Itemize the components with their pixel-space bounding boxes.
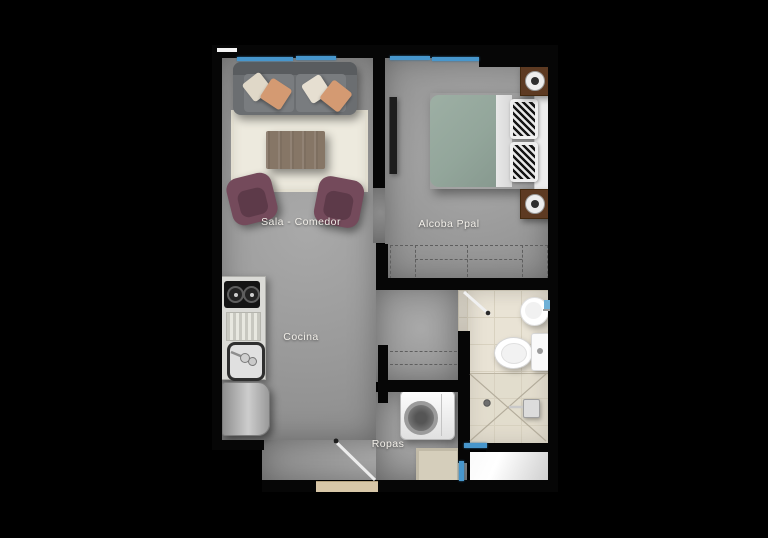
refrigerator [222, 382, 270, 436]
toilet [494, 337, 533, 369]
room-label-ropas: Ropas [372, 438, 405, 450]
window-bedroom-left [390, 56, 430, 60]
wall-top-right-thick [479, 45, 558, 67]
shower-fixture [523, 399, 540, 418]
coffee-table [266, 131, 325, 169]
ropas-closet-rod-line [390, 351, 457, 352]
window-bedroom-right [432, 57, 479, 61]
bedroom-closet-divider [522, 245, 523, 277]
washer-door [404, 401, 438, 435]
bedroom-closet-divider [467, 245, 468, 277]
nightstand-lamp [525, 194, 545, 214]
wall-bottom-left [262, 480, 318, 492]
bed-pillow-bottom [510, 142, 538, 182]
wall-left-step [212, 440, 264, 450]
wall-tv [389, 97, 397, 174]
window-sill-notch [217, 48, 237, 52]
wall-ropas-vertical [378, 345, 388, 403]
stove [224, 281, 260, 308]
bed-pillow-top [510, 99, 538, 139]
wall-right [548, 45, 558, 492]
bedroom-closet-divider [415, 245, 416, 277]
wall-sala-bedroom [373, 57, 385, 188]
floor-plan: Sala - Comedor Alcoba Ppal Cocina Ropas [0, 0, 768, 538]
corridor-floor [376, 285, 458, 382]
room-label-cocina: Cocina [283, 331, 318, 343]
room-label-alcoba: Alcoba Ppal [419, 218, 480, 230]
burner [243, 286, 260, 303]
entrance-threshold [316, 481, 378, 492]
window-bathroom-bottom [464, 443, 487, 448]
armchair-seat [236, 186, 270, 219]
drainboard [226, 312, 261, 341]
wall-bathroom-bottom [486, 443, 548, 452]
kitchen-sink [227, 342, 265, 381]
ropas-closet-rod-line [390, 364, 457, 365]
washer-panel-line [441, 394, 442, 436]
lamp-center [531, 200, 539, 208]
wall-bedroom-bottom [376, 278, 556, 290]
nightstand-lamp [525, 71, 545, 91]
bedroom-closet-shelf-line [415, 259, 522, 260]
room-label-sala: Sala - Comedor [261, 216, 341, 228]
basin [525, 302, 542, 319]
bedroom-closet-outline [390, 245, 548, 279]
bathroom-glass-shelf [544, 300, 550, 310]
bed-duvet [430, 95, 498, 187]
flush-button [537, 348, 543, 354]
window-sala-left [237, 57, 293, 61]
wall-left [212, 45, 222, 445]
sink-drain [248, 357, 257, 366]
window-laundry-bottom [459, 461, 464, 481]
toilet-seat [501, 343, 527, 364]
lamp-center [531, 77, 539, 85]
wall-ropas-horizontal [378, 380, 467, 392]
bathroom-door-threshold [458, 290, 467, 332]
wall-bottom-right [376, 480, 556, 492]
window-sala-right [296, 56, 336, 60]
balcony-floor [470, 452, 548, 480]
washing-machine [400, 390, 455, 440]
burner [227, 286, 244, 303]
